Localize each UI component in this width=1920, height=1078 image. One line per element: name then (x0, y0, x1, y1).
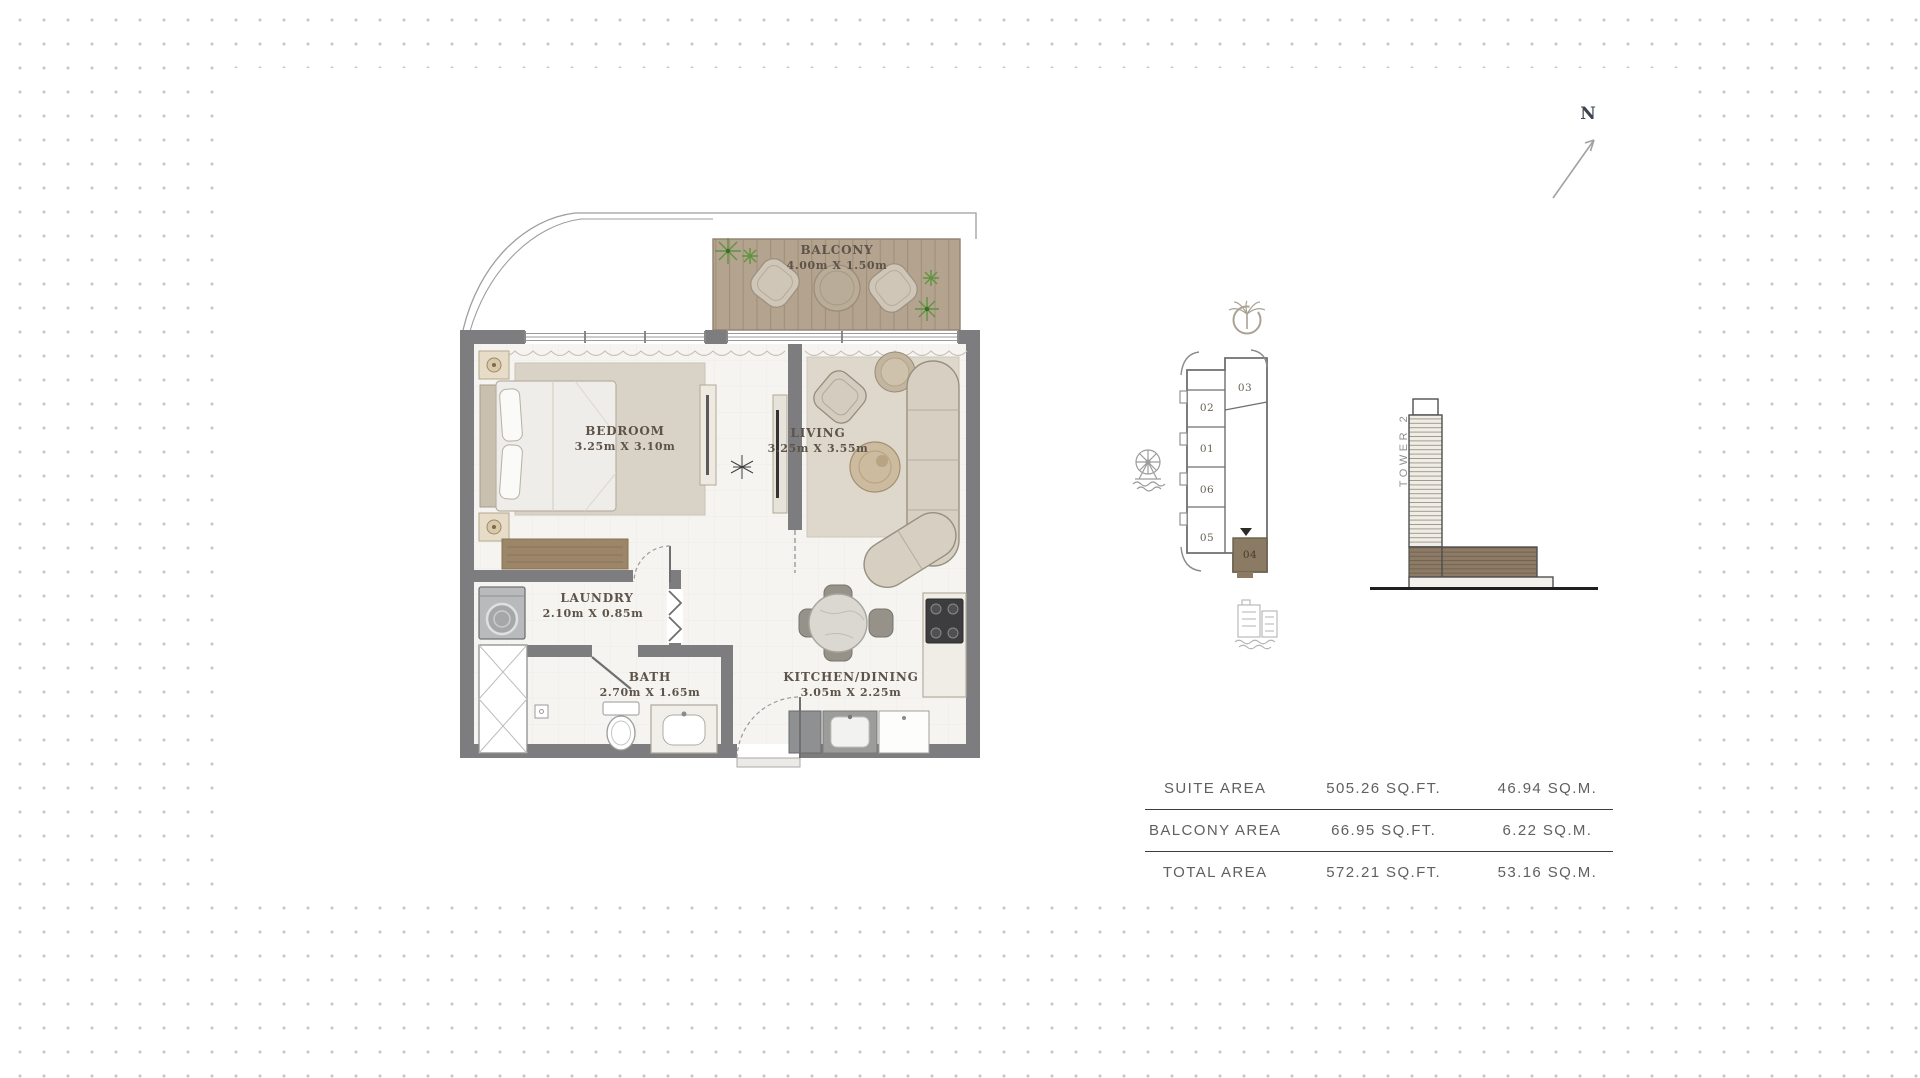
bedroom-window (525, 331, 705, 343)
service-shaft (479, 645, 527, 753)
balcony-slider-window (727, 331, 958, 343)
toilet-tank (603, 702, 639, 715)
entry-threshold (737, 758, 800, 767)
room-dims-balcony: 4.00m X 1.50m (787, 259, 888, 272)
balcony-stubs (1180, 391, 1187, 525)
tower-body (1409, 415, 1442, 547)
area-sqm: 53.16 SQ.M. (1482, 864, 1613, 881)
cooktop (926, 599, 963, 643)
building-outline (1180, 350, 1267, 578)
tower-highlight-floors (1409, 547, 1442, 577)
area-sqft: 572.21 SQ.FT. (1285, 864, 1482, 881)
area-label: BALCONY AREA (1145, 822, 1285, 839)
keyplan-unit-05: 05 (1200, 532, 1214, 544)
room-dims-bath: 2.70m X 1.65m (600, 686, 701, 699)
tower-label: TOWER 2 (1398, 413, 1410, 487)
keyplan-unit-06: 06 (1200, 484, 1214, 496)
area-sqft: 505.26 SQ.FT. (1285, 780, 1482, 797)
room-label-kitchen-dining: KITCHEN/DINING (783, 670, 918, 684)
keyplan-unit-02: 02 (1200, 402, 1214, 414)
area-table: SUITE AREA 505.26 SQ.FT. 46.94 SQ.M. BAL… (1145, 768, 1613, 893)
dining-table (809, 594, 867, 652)
room-label-balcony: BALCONY (800, 243, 873, 257)
area-table-row-suite: SUITE AREA 505.26 SQ.FT. 46.94 SQ.M. (1145, 768, 1613, 810)
tower-roof (1413, 399, 1438, 415)
room-dims-kitchen-dining: 3.05m X 2.25m (801, 686, 902, 699)
dresser (502, 539, 628, 569)
brochure-page: BALCONY 4.00m X 1.50m BEDROOM 3.25m X 3.… (0, 0, 1920, 1078)
podium-highlight (1442, 547, 1537, 577)
key-plan-drawing (1125, 295, 1300, 655)
area-table-row-balcony: BALCONY AREA 66.95 SQ.FT. 6.22 SQ.M. (1145, 810, 1613, 852)
room-label-bath: BATH (629, 670, 671, 684)
tower-elevation: TOWER 2 (1368, 392, 1603, 602)
sink (663, 715, 705, 745)
key-plan: 03 02 01 06 05 04 (1125, 295, 1300, 655)
area-label: TOTAL AREA (1145, 864, 1285, 881)
area-sqm: 46.94 SQ.M. (1482, 780, 1613, 797)
area-table-row-total: TOTAL AREA 572.21 SQ.FT. 53.16 SQ.M. (1145, 852, 1613, 893)
room-dims-laundry: 2.10m X 0.85m (543, 607, 644, 620)
floor-plan-drawing (455, 205, 985, 775)
keyplan-unit-03: 03 (1238, 382, 1252, 394)
keyplan-unit-04-highlighted: 04 (1243, 549, 1257, 561)
north-indicator: N (1548, 100, 1638, 210)
north-label: N (1578, 104, 1598, 124)
podium-base (1409, 577, 1553, 588)
room-dims-living: 3.25m X 3.55m (768, 442, 869, 455)
room-label-living: LIVING (791, 426, 846, 440)
area-sqft: 66.95 SQ.FT. (1285, 822, 1482, 839)
bath-fixture (535, 705, 548, 718)
room-label-bedroom: BEDROOM (585, 424, 664, 438)
fridge (789, 711, 821, 753)
room-dims-bedroom: 3.25m X 3.10m (575, 440, 676, 453)
room-label-laundry: LAUNDRY (560, 591, 633, 605)
keyplan-unit-01: 01 (1200, 443, 1214, 455)
area-sqm: 6.22 SQ.M. (1482, 822, 1613, 839)
floor-plan: BALCONY 4.00m X 1.50m BEDROOM 3.25m X 3.… (455, 205, 985, 775)
ferris-wheel-icon (1133, 450, 1165, 491)
unit-04-balcony-tab (1237, 572, 1253, 578)
palm-jumeirah-icon (1229, 301, 1265, 334)
area-label: SUITE AREA (1145, 780, 1285, 797)
city-skyline-icon (1235, 600, 1277, 649)
kitchen-sink (831, 717, 869, 747)
